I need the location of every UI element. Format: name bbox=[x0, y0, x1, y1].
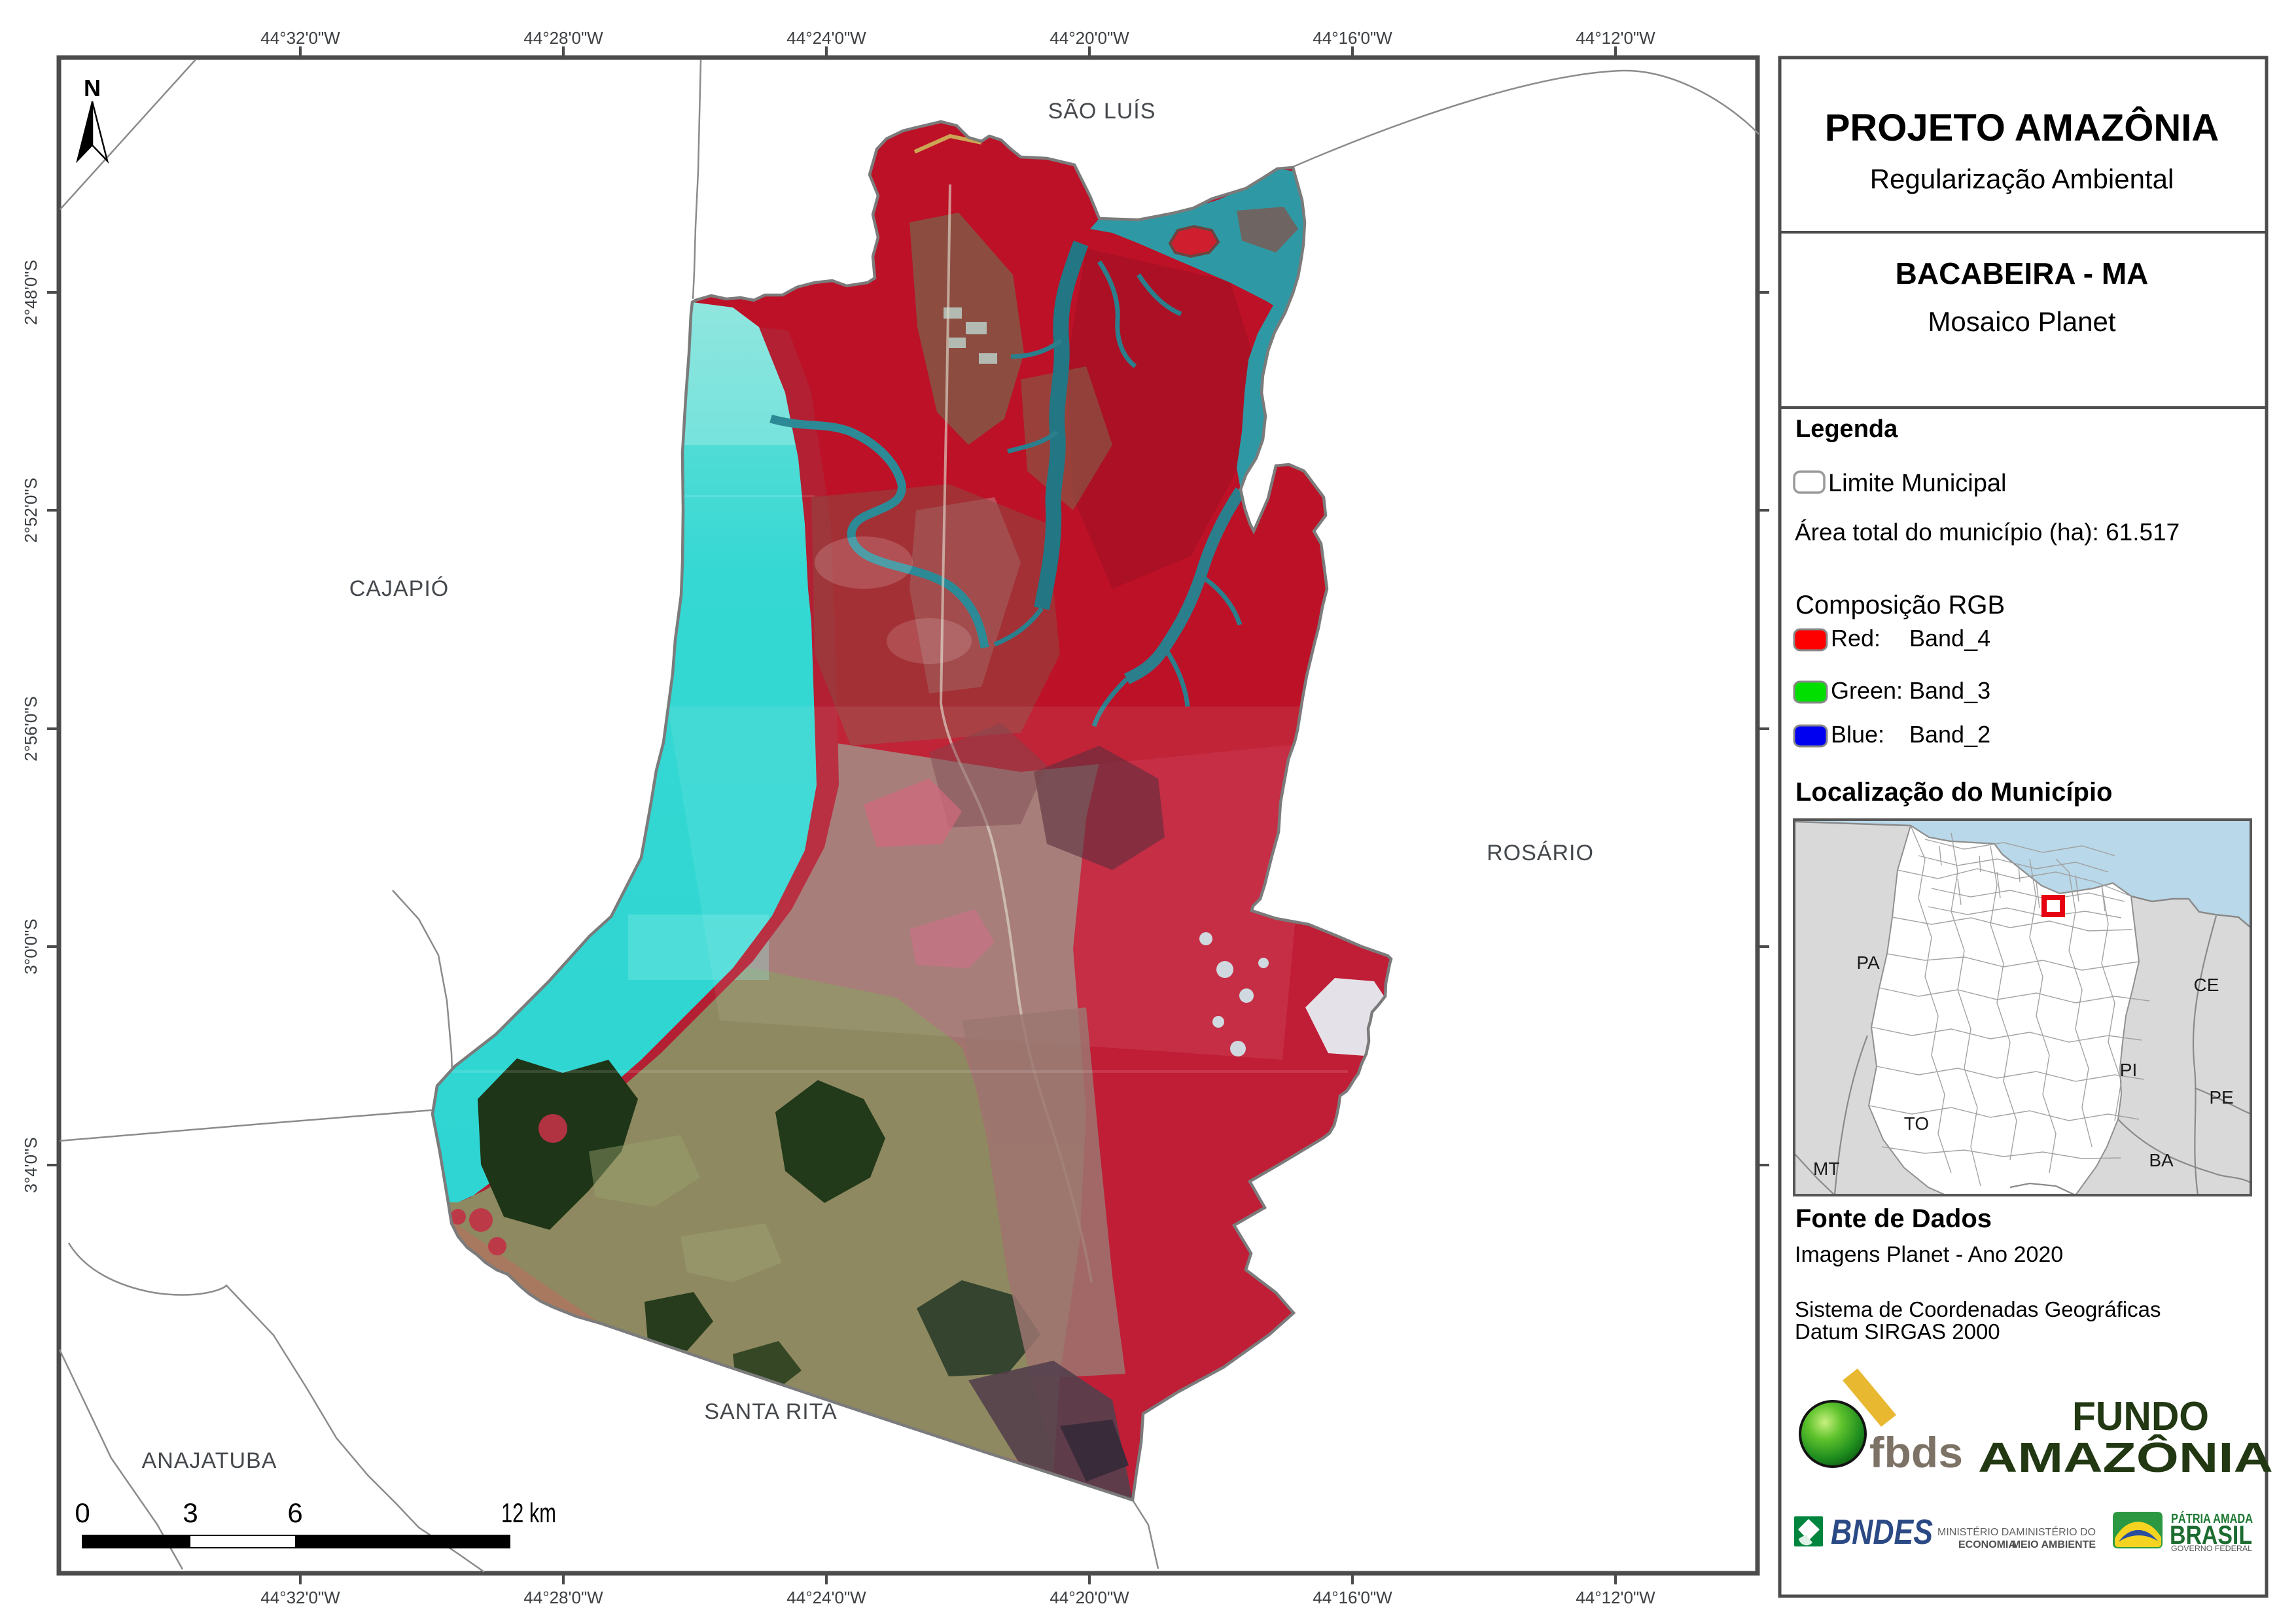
svg-text:SANTA RITA: SANTA RITA bbox=[704, 1399, 837, 1424]
svg-text:Band_4: Band_4 bbox=[1909, 625, 1990, 652]
svg-text:44°24'0"W: 44°24'0"W bbox=[786, 1588, 866, 1607]
svg-text:44°20'0"W: 44°20'0"W bbox=[1050, 1588, 1129, 1607]
svg-text:Limite Municipal: Limite Municipal bbox=[1828, 470, 2006, 497]
svg-text:CE: CE bbox=[2194, 975, 2219, 995]
svg-text:44°24'0"W: 44°24'0"W bbox=[786, 28, 866, 48]
svg-text:44°28'0"W: 44°28'0"W bbox=[523, 1588, 603, 1607]
svg-text:BACABEIRA - MA: BACABEIRA - MA bbox=[1896, 256, 2149, 290]
svg-text:44°20'0"W: 44°20'0"W bbox=[1050, 28, 1129, 48]
svg-text:12 km: 12 km bbox=[501, 1497, 556, 1528]
svg-text:MINISTÉRIO DO: MINISTÉRIO DO bbox=[2016, 1526, 2096, 1538]
svg-text:Legenda: Legenda bbox=[1795, 415, 1898, 443]
svg-text:Datum SIRGAS 2000: Datum SIRGAS 2000 bbox=[1795, 1319, 2000, 1344]
svg-text:0: 0 bbox=[75, 1497, 90, 1528]
svg-text:3°4'0"S: 3°4'0"S bbox=[21, 1137, 41, 1193]
svg-text:44°32'0"W: 44°32'0"W bbox=[260, 1588, 340, 1607]
svg-text:44°28'0"W: 44°28'0"W bbox=[523, 28, 603, 48]
svg-text:Regularização Ambiental: Regularização Ambiental bbox=[1870, 164, 2174, 194]
svg-text:Área total do município (ha):: Área total do município (ha): 61.517 bbox=[1795, 519, 2180, 546]
svg-text:N: N bbox=[84, 75, 101, 101]
svg-text:6: 6 bbox=[287, 1497, 302, 1528]
svg-text:TO: TO bbox=[1904, 1113, 1929, 1134]
svg-text:Red:: Red: bbox=[1831, 625, 1881, 652]
svg-text:BNDES: BNDES bbox=[1831, 1512, 1933, 1552]
svg-text:MT: MT bbox=[1813, 1159, 1839, 1179]
svg-text:CAJAPIÓ: CAJAPIÓ bbox=[349, 576, 449, 601]
svg-text:BA: BA bbox=[2149, 1150, 2174, 1170]
svg-text:Band_2: Band_2 bbox=[1909, 721, 1990, 748]
svg-text:Blue:: Blue: bbox=[1831, 721, 1884, 748]
svg-text:PROJETO AMAZÔNIA: PROJETO AMAZÔNIA bbox=[1825, 107, 2219, 149]
svg-text:3°0'0"S: 3°0'0"S bbox=[21, 918, 41, 974]
svg-text:Band_3: Band_3 bbox=[1909, 677, 1990, 704]
svg-text:ROSÁRIO: ROSÁRIO bbox=[1487, 841, 1594, 865]
svg-text:MINISTÉRIO DA: MINISTÉRIO DA bbox=[1937, 1526, 2016, 1538]
svg-text:44°32'0"W: 44°32'0"W bbox=[260, 28, 340, 48]
svg-text:fbds: fbds bbox=[1869, 1428, 1963, 1476]
svg-text:Localização do Município: Localização do Município bbox=[1795, 778, 2113, 807]
svg-text:44°12'0"W: 44°12'0"W bbox=[1576, 28, 1655, 48]
svg-text:44°16'0"W: 44°16'0"W bbox=[1313, 28, 1392, 48]
svg-text:ECONOMIA: ECONOMIA bbox=[1958, 1539, 2016, 1550]
svg-text:Green:: Green: bbox=[1831, 677, 1903, 704]
svg-text:FUNDO: FUNDO bbox=[2072, 1394, 2209, 1439]
svg-text:2°52'0"S: 2°52'0"S bbox=[21, 478, 41, 543]
svg-text:Fonte de Dados: Fonte de Dados bbox=[1795, 1204, 1992, 1233]
svg-text:3: 3 bbox=[183, 1497, 198, 1528]
svg-text:PA: PA bbox=[1856, 952, 1880, 973]
svg-text:SÃO LUÍS: SÃO LUÍS bbox=[1048, 99, 1156, 124]
svg-text:ANAJATUBA: ANAJATUBA bbox=[142, 1448, 277, 1473]
svg-text:PI: PI bbox=[2120, 1060, 2137, 1080]
svg-text:2°48'0"S: 2°48'0"S bbox=[21, 260, 41, 325]
svg-text:MEIO AMBIENTE: MEIO AMBIENTE bbox=[2012, 1539, 2096, 1550]
svg-text:GOVERNO FEDERAL: GOVERNO FEDERAL bbox=[2171, 1544, 2252, 1553]
svg-text:44°16'0"W: 44°16'0"W bbox=[1313, 1588, 1392, 1607]
svg-text:Composição RGB: Composição RGB bbox=[1795, 591, 2005, 620]
svg-text:Imagens Planet - Ano 2020: Imagens Planet - Ano 2020 bbox=[1795, 1242, 2063, 1267]
svg-text:AMAZÔNIA: AMAZÔNIA bbox=[1978, 1433, 2273, 1481]
svg-text:44°12'0"W: 44°12'0"W bbox=[1576, 1588, 1655, 1607]
svg-text:PE: PE bbox=[2209, 1087, 2233, 1108]
svg-text:Sistema de Coordenadas Geográf: Sistema de Coordenadas Geográficas bbox=[1795, 1297, 2161, 1321]
svg-text:Mosaico Planet: Mosaico Planet bbox=[1928, 306, 2115, 337]
svg-text:2°56'0"S: 2°56'0"S bbox=[21, 696, 41, 761]
